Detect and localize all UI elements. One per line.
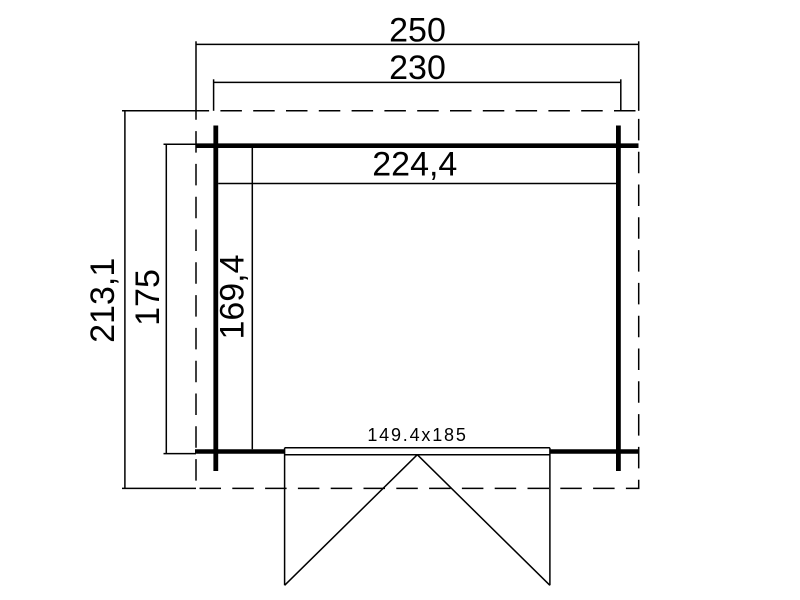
svg-text:149.4x185: 149.4x185 xyxy=(367,425,467,445)
svg-text:224,4: 224,4 xyxy=(372,145,457,183)
svg-text:175: 175 xyxy=(129,269,167,326)
svg-text:250: 250 xyxy=(389,11,446,49)
svg-text:213,1: 213,1 xyxy=(84,258,122,343)
svg-text:230: 230 xyxy=(389,49,446,87)
svg-text:169,4: 169,4 xyxy=(213,254,251,339)
